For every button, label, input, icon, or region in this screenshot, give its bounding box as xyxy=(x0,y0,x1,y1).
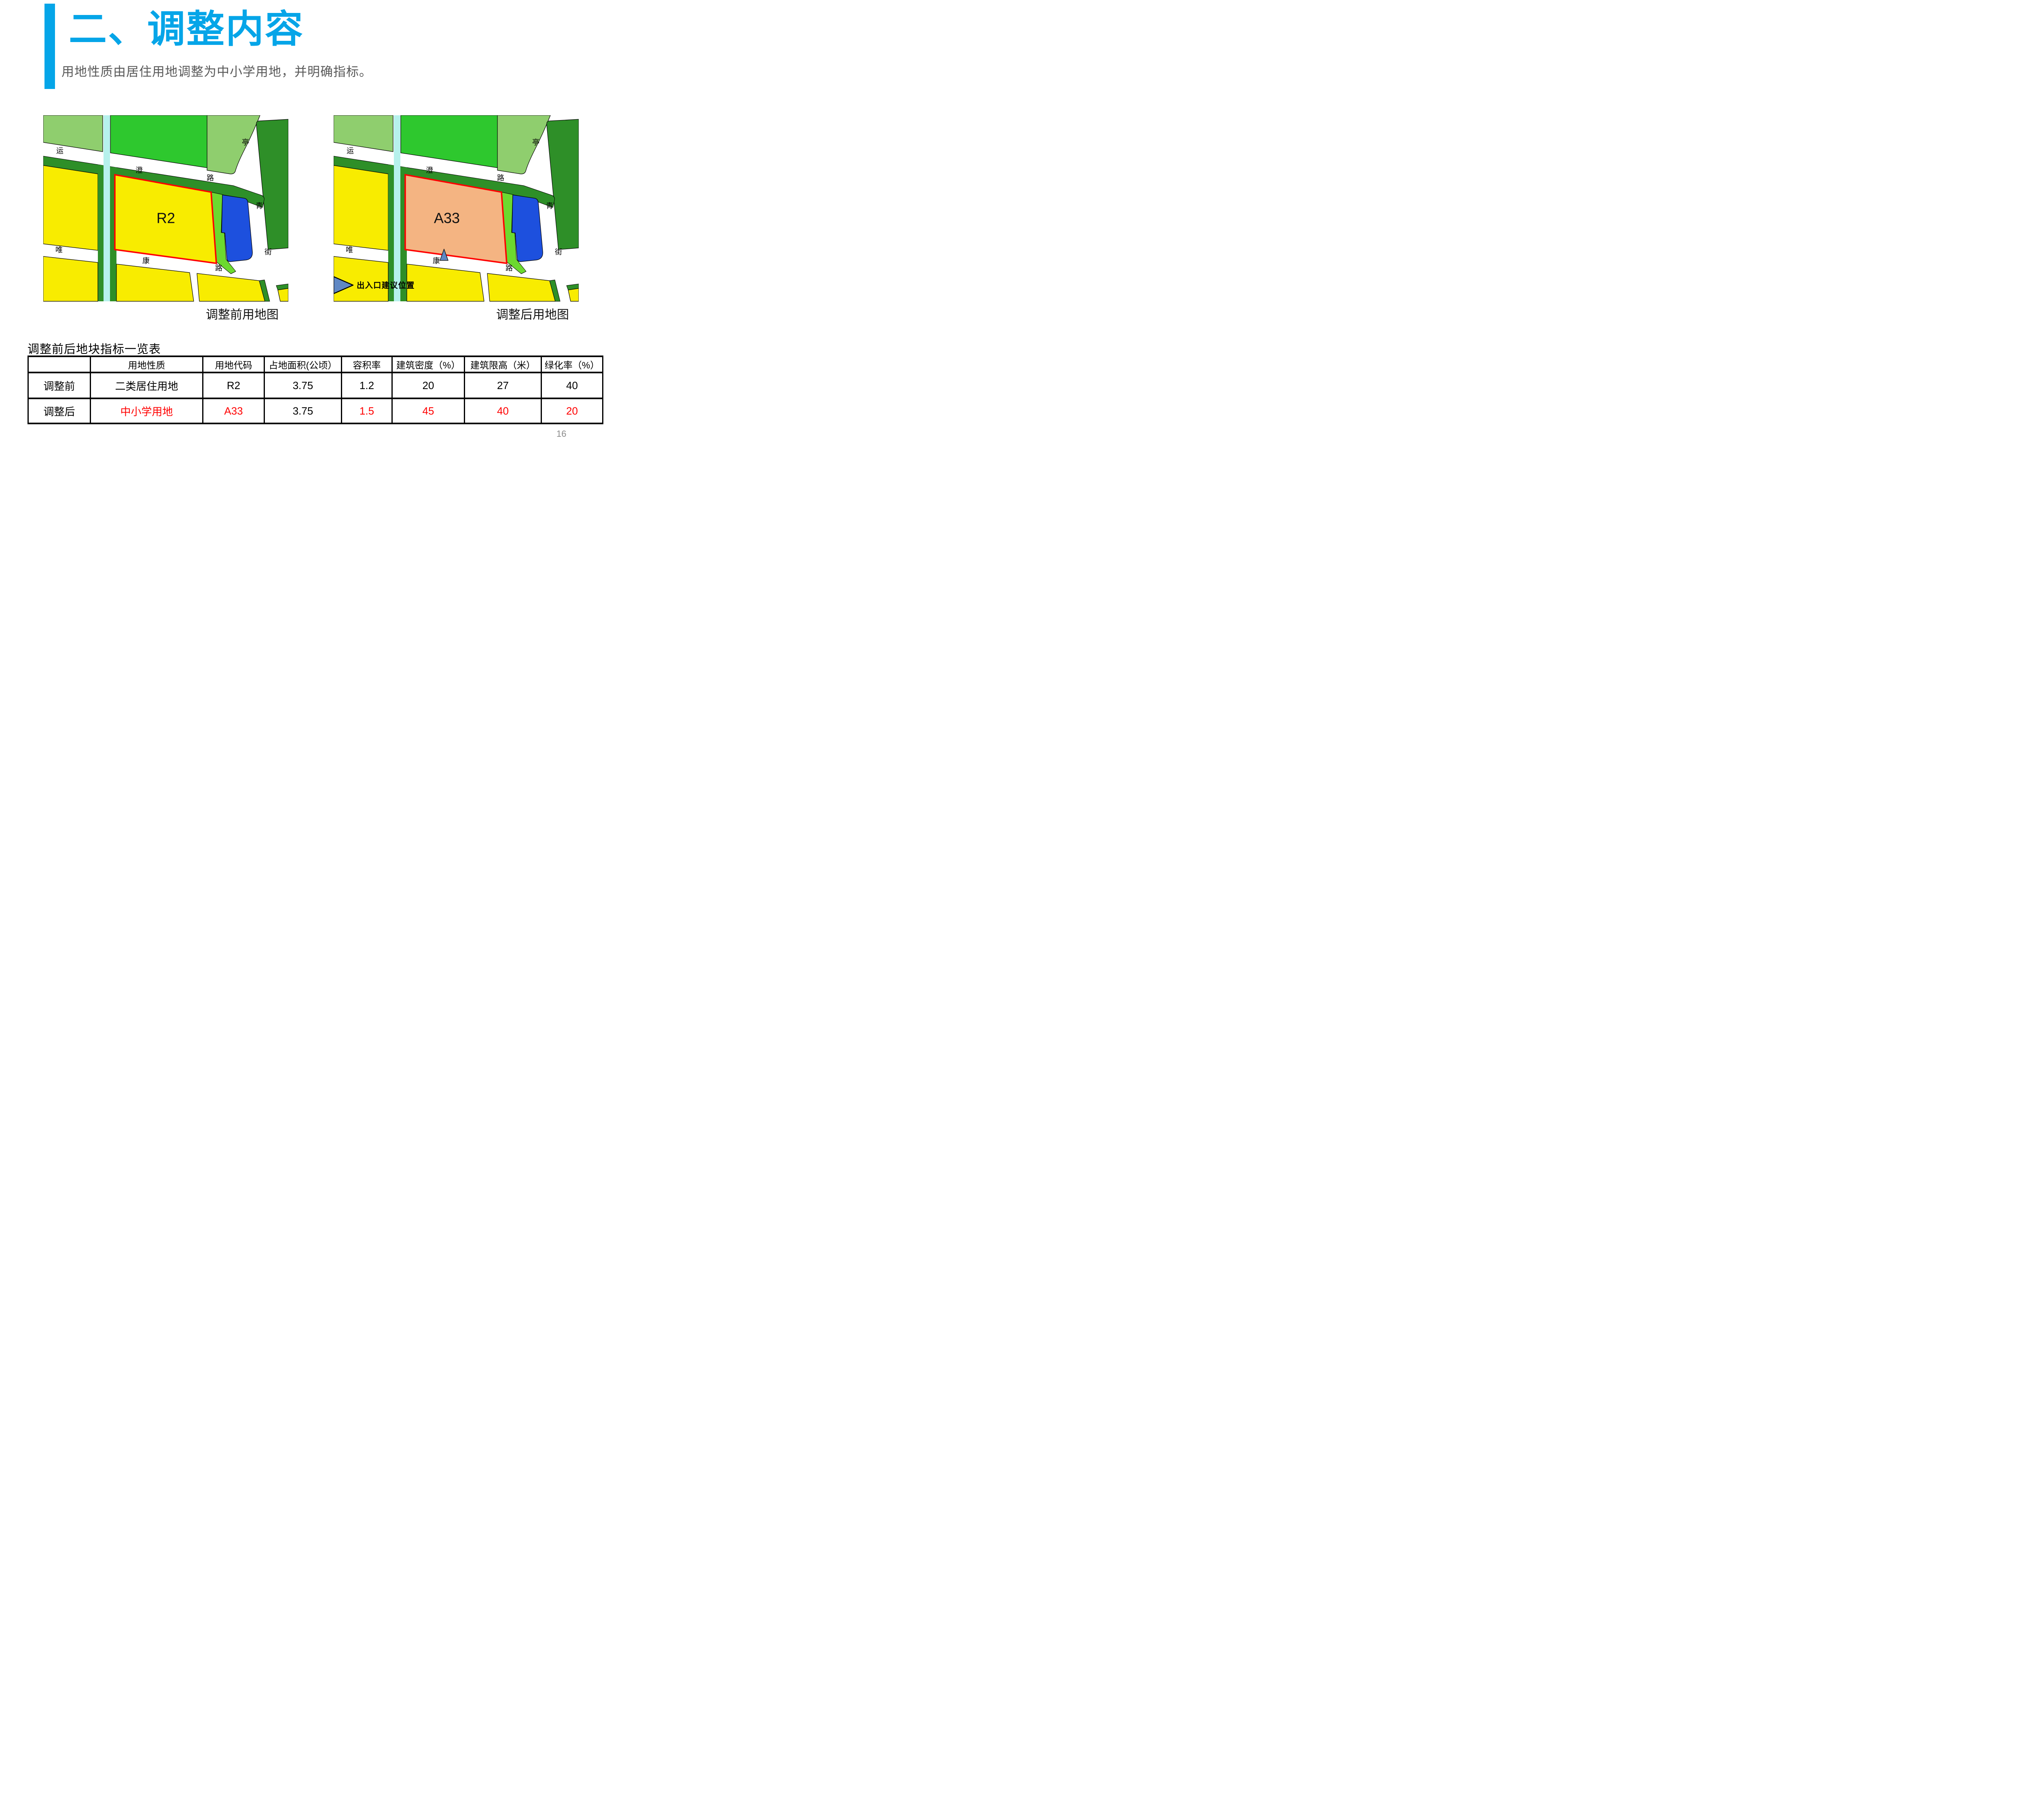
header-cell: 容积率 xyxy=(342,356,392,372)
canal-bank-left xyxy=(98,165,104,301)
value-cell: 中小学用地 xyxy=(91,398,203,423)
canal xyxy=(394,115,400,301)
block-yellow-bottom-mid xyxy=(407,264,484,301)
header-cell: 占地面积(公顷） xyxy=(264,356,342,372)
road-name-char-4: 青 xyxy=(546,202,553,210)
page-title: 二、调整内容 xyxy=(69,7,304,51)
road-name-char-8: 路 xyxy=(505,264,513,272)
block-yellow-bottom-left xyxy=(334,256,388,301)
block-yellow-left xyxy=(334,165,388,250)
block-yellow-bottom-right xyxy=(197,273,265,301)
row-label-cell: 调整前 xyxy=(28,372,91,398)
land-use-map-before-svg: R2运澄路亭青街唯康路 xyxy=(43,115,288,305)
header-cell: 用地性质 xyxy=(91,356,203,372)
parcel-code-label: A33 xyxy=(434,210,460,226)
block-green-top-center xyxy=(401,115,498,168)
legend-label: 出入口建议位置 xyxy=(357,281,415,290)
road-name-char-2: 路 xyxy=(207,174,214,182)
blue-parcel xyxy=(222,195,252,262)
road-name-char-7: 康 xyxy=(142,257,150,265)
value-cell: 1.5 xyxy=(342,398,392,423)
value-cell: 20 xyxy=(541,398,603,423)
indicators-table-wrap: 用地性质用地代码占地面积(公顷）容积率建筑密度（%）建筑限高（米）绿化率（%）调… xyxy=(27,356,603,424)
block-darkgreen-right xyxy=(547,119,579,250)
road-name-char-5: 街 xyxy=(555,248,562,256)
value-cell: 3.75 xyxy=(264,372,342,398)
block-green-top-right xyxy=(497,115,550,174)
road-name-char-0: 运 xyxy=(347,147,354,155)
block-green-top-left xyxy=(334,115,393,152)
header-cell: 绿化率（%） xyxy=(541,356,603,372)
block-green-top-center xyxy=(110,115,208,168)
block-yellow-corner xyxy=(278,288,288,301)
value-cell: 45 xyxy=(392,398,465,423)
road-name-char-3: 亭 xyxy=(532,138,539,146)
road-name-char-2: 路 xyxy=(497,174,504,182)
block-green-top-right xyxy=(207,115,260,174)
page-number: 16 xyxy=(556,429,566,439)
subtitle: 用地性质由居住用地调整为中小学用地，并明确指标。 xyxy=(61,61,372,80)
parcel-code-label: R2 xyxy=(157,210,175,226)
map-after-caption: 调整后用地图 xyxy=(334,305,579,322)
indicators-table: 用地性质用地代码占地面积(公顷）容积率建筑密度（%）建筑限高（米）绿化率（%）调… xyxy=(27,356,603,424)
header-cell: 用地代码 xyxy=(203,356,264,372)
value-cell: 40 xyxy=(465,398,541,423)
land-use-map-before: R2运澄路亭青街唯康路 xyxy=(43,115,288,305)
table-row: 调整后中小学用地A333.751.5454020 xyxy=(28,398,603,423)
road-name-char-4: 青 xyxy=(256,202,263,210)
block-darkgreen-right xyxy=(256,119,288,250)
value-cell: 27 xyxy=(465,372,541,398)
road-name-char-7: 康 xyxy=(433,257,440,265)
table-row: 调整前二类居住用地R23.751.2202740 xyxy=(28,372,603,398)
road-name-char-8: 路 xyxy=(215,264,222,272)
table-title: 调整前后地块指标一览表 xyxy=(27,340,161,357)
header-cell: 建筑密度（%） xyxy=(392,356,465,372)
value-cell: 20 xyxy=(392,372,465,398)
value-cell: 1.2 xyxy=(342,372,392,398)
map-before-caption: 调整前用地图 xyxy=(43,305,288,322)
value-cell: 40 xyxy=(541,372,603,398)
value-cell: A33 xyxy=(203,398,264,423)
blue-parcel xyxy=(512,195,543,262)
block-yellow-bottom-left xyxy=(43,256,98,301)
value-cell: R2 xyxy=(203,372,264,398)
block-yellow-corner xyxy=(568,288,579,301)
block-green-top-left xyxy=(43,115,103,152)
value-cell: 3.75 xyxy=(264,398,342,423)
title-accent-bar xyxy=(44,4,55,89)
block-yellow-bottom-right xyxy=(487,273,555,301)
block-yellow-bottom-mid xyxy=(116,264,194,301)
slide: 二、调整内容 用地性质由居住用地调整为中小学用地，并明确指标。 R2运澄路亭青街… xyxy=(0,0,607,455)
canal xyxy=(104,115,110,301)
road-name-char-1: 澄 xyxy=(426,166,433,174)
road-name-char-1: 澄 xyxy=(135,166,143,174)
row-label-cell: 调整后 xyxy=(28,398,91,423)
header-cell: 建筑限高（米） xyxy=(465,356,541,372)
road-name-char-6: 唯 xyxy=(55,246,63,254)
road-name-char-3: 亭 xyxy=(242,138,249,146)
road-name-char-0: 运 xyxy=(56,147,63,155)
header-cell-empty xyxy=(28,356,91,372)
land-use-map-after: A33运澄路亭青街唯康路出入口建议位置 xyxy=(334,115,579,305)
value-cell: 二类居住用地 xyxy=(91,372,203,398)
land-use-map-after-svg: A33运澄路亭青街唯康路出入口建议位置 xyxy=(334,115,579,305)
block-yellow-left xyxy=(43,165,98,250)
road-name-char-6: 唯 xyxy=(346,246,353,254)
road-name-char-5: 街 xyxy=(264,248,272,256)
